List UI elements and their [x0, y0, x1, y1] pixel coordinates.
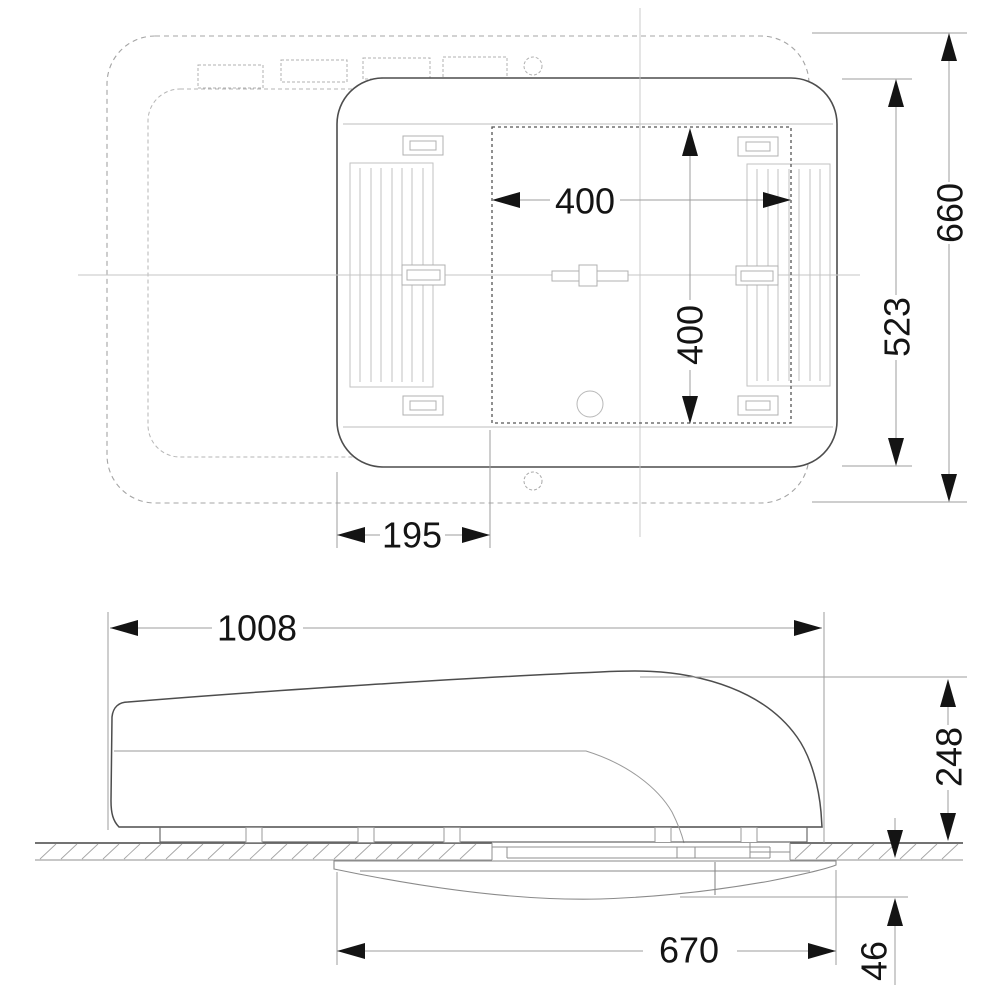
drawing-canvas: 400 400 195 523 — [0, 0, 1000, 1000]
foot-notch — [655, 828, 671, 843]
roof-section — [35, 843, 963, 860]
arrow-up-icon — [887, 898, 903, 926]
technical-drawing: 400 400 195 523 — [0, 0, 1000, 1000]
interior-distributor — [334, 861, 836, 899]
roof-hatch-left — [40, 844, 476, 859]
dim-label-cutout-depth: 400 — [670, 305, 711, 365]
arrow-down-icon — [940, 813, 956, 841]
fastener-inner — [410, 141, 436, 150]
foot-notch — [246, 828, 262, 843]
roof-hatch-rect — [198, 65, 263, 88]
arrow-down-icon — [887, 830, 903, 858]
roof-hatch-rect — [443, 57, 507, 78]
arrow-up-icon — [888, 79, 904, 107]
dim-label-side-offset: 195 — [382, 515, 442, 556]
roof-circle-small — [524, 472, 542, 490]
connector-right-inner — [741, 271, 773, 281]
arrow-down-icon — [888, 438, 904, 466]
fastener-inner — [746, 142, 770, 151]
roof-hatch-rect — [281, 60, 347, 82]
dim-label-overall-depth: 660 — [930, 183, 971, 243]
dim-label-unit-depth: 523 — [877, 297, 918, 357]
dim-label-interior-drop: 46 — [854, 941, 895, 981]
arrow-left-icon — [337, 527, 365, 543]
arrow-up-icon — [940, 679, 956, 707]
dim-label-overall-length: 1008 — [217, 608, 297, 649]
fastener-inner — [410, 401, 436, 410]
base-flange — [160, 827, 807, 843]
dim-label-height-above-roof: 248 — [929, 727, 970, 787]
connector-center-inner — [579, 265, 597, 286]
foot-notch — [741, 828, 757, 843]
dim-interior-length: 670 — [337, 870, 836, 971]
dim-label-cutout-width: 400 — [555, 181, 615, 222]
arrow-left-icon — [110, 620, 138, 636]
top-view: 400 400 195 523 — [78, 8, 971, 556]
dim-unit-depth: 523 — [842, 79, 918, 466]
roof-hatch-right — [795, 844, 958, 859]
roof-vent-circle — [524, 57, 542, 75]
arrow-right-icon — [462, 527, 490, 543]
foot-notch — [358, 828, 374, 843]
side-view: 1008 248 670 46 — [35, 608, 970, 986]
dim-label-interior-length: 670 — [659, 930, 719, 971]
unit-outline-profile — [111, 671, 822, 827]
connector-left-inner — [407, 270, 440, 280]
foot-notch — [444, 828, 460, 843]
fastener-inner — [746, 401, 770, 410]
distributor-outline — [334, 861, 836, 899]
mounting-frame-lines — [492, 843, 790, 860]
arrow-right-icon — [794, 620, 822, 636]
arrow-up-icon — [941, 33, 957, 61]
arrow-down-icon — [941, 474, 957, 502]
arrow-right-icon — [808, 943, 836, 959]
arrow-left-icon — [337, 943, 365, 959]
roof-hatch-rect — [363, 58, 430, 79]
